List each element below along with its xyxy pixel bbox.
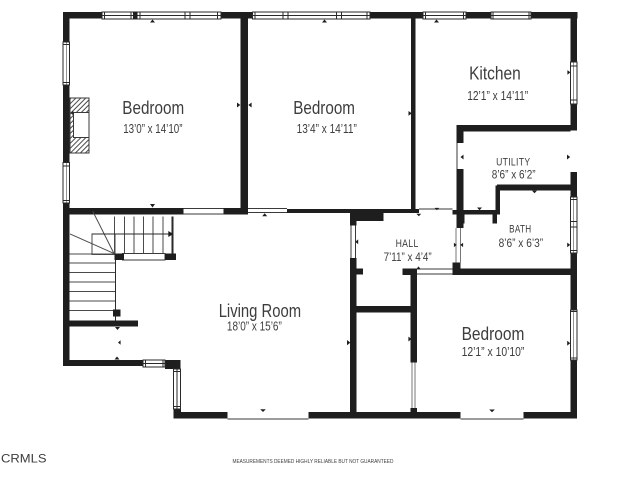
- svg-text:CRMLS: CRMLS: [1, 452, 47, 466]
- svg-text:13’0” x 14’10”: 13’0” x 14’10”: [123, 121, 182, 136]
- svg-text:12’1” x 14’11”: 12’1” x 14’11”: [467, 88, 528, 103]
- svg-text:HALL: HALL: [396, 238, 419, 250]
- svg-text:Bedroom: Bedroom: [293, 98, 355, 118]
- svg-text:MEASUREMENTS DEEMED HIGHLY REL: MEASUREMENTS DEEMED HIGHLY RELIABLE BUT …: [233, 459, 394, 465]
- svg-text:8’6” x 6’3”: 8’6” x 6’3”: [499, 238, 544, 250]
- svg-text:18’0” x 15’6”: 18’0” x 15’6”: [227, 319, 282, 334]
- svg-text:Bedroom: Bedroom: [462, 324, 525, 344]
- svg-text:UTILITY: UTILITY: [496, 157, 531, 169]
- svg-text:BATH: BATH: [509, 224, 531, 236]
- svg-text:Bedroom: Bedroom: [122, 98, 184, 118]
- svg-text:7’11” x 4’4”: 7’11” x 4’4”: [384, 252, 432, 264]
- svg-text:12’1” x 10’10”: 12’1” x 10’10”: [462, 344, 525, 359]
- svg-text:13’4” x 14’11”: 13’4” x 14’11”: [297, 121, 357, 136]
- svg-text:8’6” x 6’2”: 8’6” x 6’2”: [492, 170, 536, 182]
- svg-text:Kitchen: Kitchen: [469, 64, 521, 84]
